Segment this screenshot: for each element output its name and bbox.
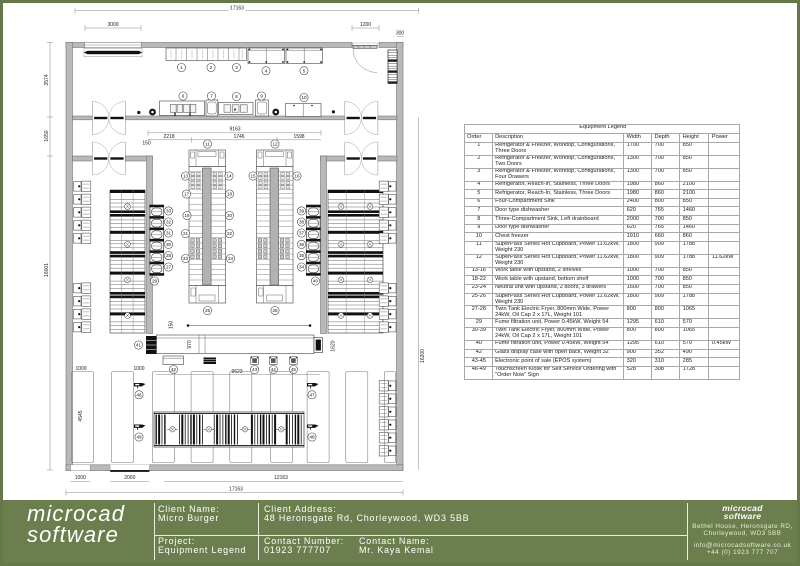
svg-text:38: 38 xyxy=(299,220,305,225)
svg-text:19: 19 xyxy=(184,213,190,218)
svg-text:40: 40 xyxy=(313,279,319,284)
svg-text:37: 37 xyxy=(299,231,305,236)
svg-text:1000: 1000 xyxy=(75,475,86,481)
svg-text:25: 25 xyxy=(205,308,211,313)
svg-text:970: 970 xyxy=(187,340,193,349)
svg-text:16200: 16200 xyxy=(420,349,426,363)
svg-text:1598: 1598 xyxy=(293,134,304,140)
svg-text:1: 1 xyxy=(180,65,183,70)
svg-text:1200: 1200 xyxy=(360,22,371,28)
svg-text:17163: 17163 xyxy=(230,6,244,12)
svg-text:47: 47 xyxy=(309,392,315,397)
svg-text:1620: 1620 xyxy=(331,340,337,351)
svg-text:39: 39 xyxy=(299,209,305,214)
svg-text:4545: 4545 xyxy=(78,410,84,421)
svg-text:17163: 17163 xyxy=(229,487,243,493)
svg-text:26: 26 xyxy=(272,308,278,313)
svg-text:2: 2 xyxy=(210,65,213,70)
svg-text:16: 16 xyxy=(294,174,300,179)
svg-text:1650: 1650 xyxy=(44,130,50,141)
svg-text:48: 48 xyxy=(309,435,315,440)
svg-text:49: 49 xyxy=(136,435,142,440)
svg-text:18: 18 xyxy=(227,192,233,197)
svg-text:32: 32 xyxy=(166,220,172,225)
svg-text:41: 41 xyxy=(136,343,142,348)
svg-text:8: 8 xyxy=(235,94,238,99)
svg-text:24: 24 xyxy=(228,256,234,261)
svg-text:29: 29 xyxy=(152,279,158,284)
svg-text:46: 46 xyxy=(136,392,142,397)
svg-text:150: 150 xyxy=(142,141,151,147)
svg-text:3: 3 xyxy=(235,65,238,70)
svg-text:11: 11 xyxy=(205,142,210,147)
svg-text:30: 30 xyxy=(166,242,172,247)
svg-text:13: 13 xyxy=(183,174,189,179)
svg-text:5: 5 xyxy=(303,68,306,73)
svg-text:1746: 1746 xyxy=(233,134,244,140)
svg-text:4: 4 xyxy=(265,68,268,73)
svg-text:2218: 2218 xyxy=(163,134,174,140)
svg-text:12163: 12163 xyxy=(274,475,288,481)
svg-text:21: 21 xyxy=(183,231,189,236)
svg-text:31: 31 xyxy=(166,231,172,236)
svg-text:36: 36 xyxy=(299,242,305,247)
svg-text:3574: 3574 xyxy=(44,74,50,85)
svg-text:20: 20 xyxy=(227,213,233,218)
svg-text:27: 27 xyxy=(166,265,172,270)
svg-text:35: 35 xyxy=(299,253,305,258)
svg-text:23: 23 xyxy=(183,256,189,261)
svg-text:22: 22 xyxy=(227,231,233,236)
svg-text:2000: 2000 xyxy=(124,475,135,481)
svg-text:1000: 1000 xyxy=(133,366,144,372)
svg-text:9163: 9163 xyxy=(229,127,240,133)
svg-text:7: 7 xyxy=(210,94,213,99)
svg-text:6: 6 xyxy=(182,94,185,99)
svg-text:17: 17 xyxy=(184,192,190,197)
svg-text:12: 12 xyxy=(272,142,278,147)
svg-text:9623: 9623 xyxy=(231,369,242,375)
svg-text:9: 9 xyxy=(260,94,263,99)
svg-text:34: 34 xyxy=(299,265,305,270)
svg-text:150: 150 xyxy=(169,321,175,330)
svg-text:14: 14 xyxy=(226,174,232,179)
svg-text:28: 28 xyxy=(166,253,172,258)
svg-text:1000: 1000 xyxy=(75,366,86,372)
svg-text:16001: 16001 xyxy=(44,263,50,277)
svg-text:10: 10 xyxy=(301,95,307,100)
svg-text:43: 43 xyxy=(252,367,258,372)
svg-text:300: 300 xyxy=(396,31,405,37)
svg-text:3000: 3000 xyxy=(107,22,118,28)
svg-text:15: 15 xyxy=(250,174,256,179)
svg-text:33: 33 xyxy=(166,209,172,214)
